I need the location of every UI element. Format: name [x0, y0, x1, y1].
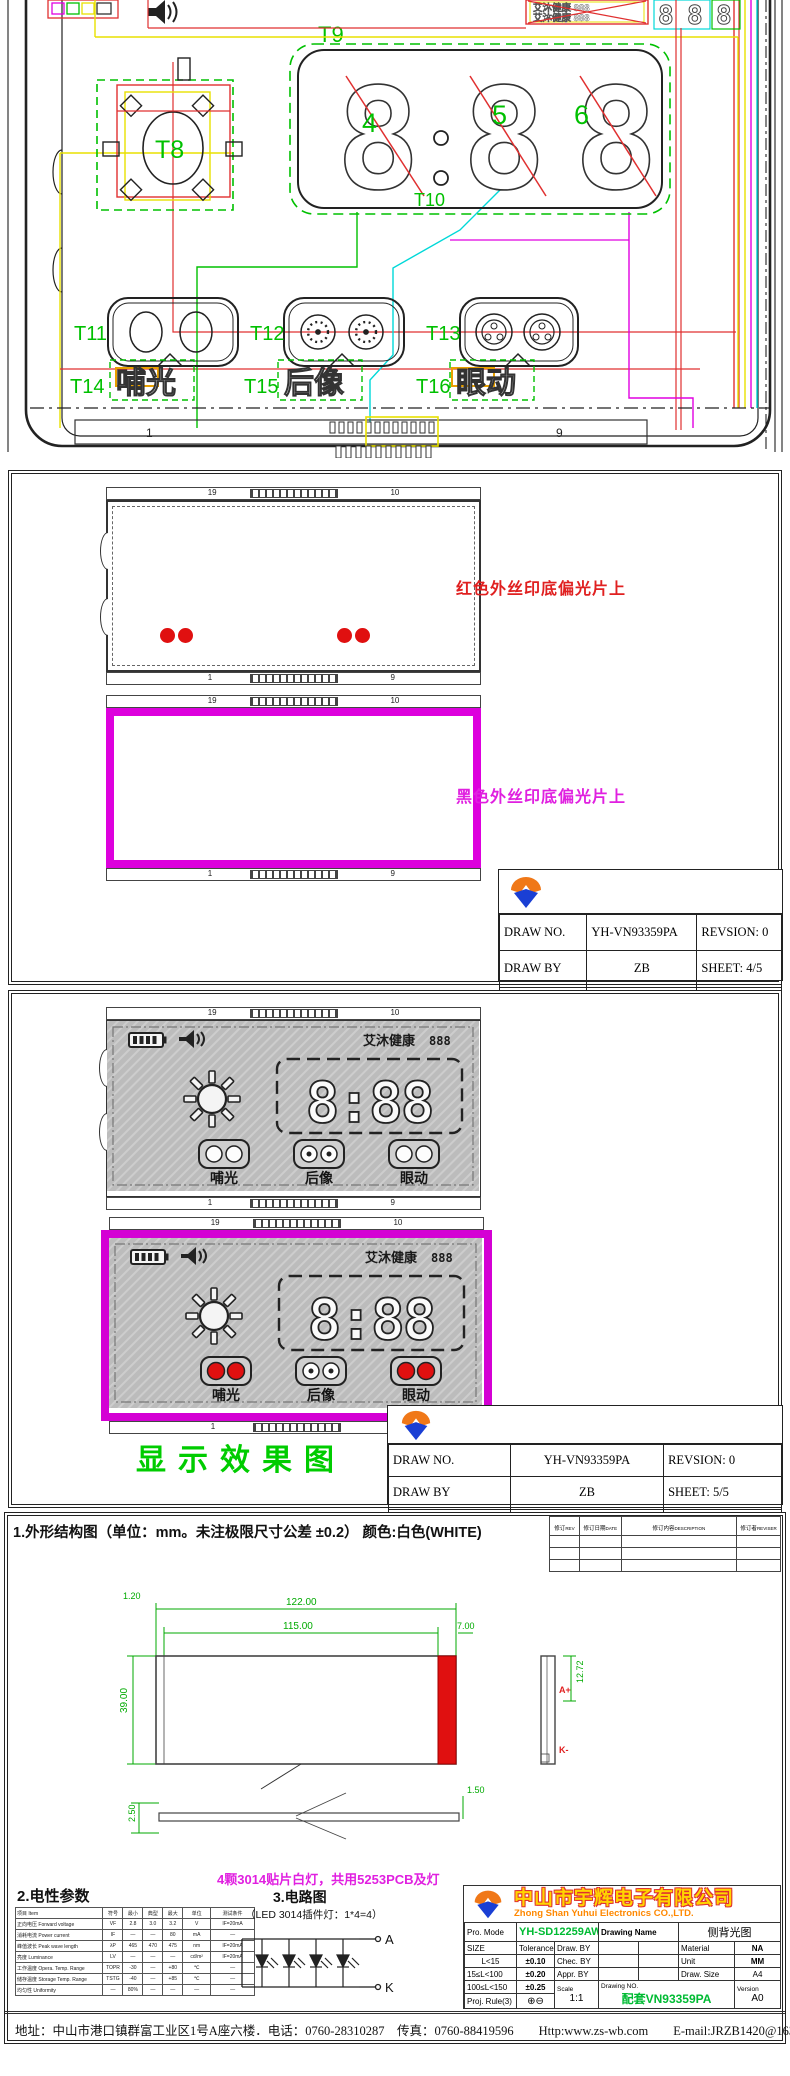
table-cell: — — [123, 1930, 143, 1941]
table-cell: — — [143, 1952, 163, 1963]
company-logo-icon — [507, 874, 545, 910]
rev-header-en: DATE — [605, 1526, 617, 1531]
electrical-heading: 2.电性参数 — [17, 1885, 90, 1906]
label-digit4: 4 — [362, 108, 377, 138]
table-cell: — — [163, 1985, 183, 1996]
pin-comb — [253, 1423, 341, 1432]
table-cell: ℃ — [183, 1974, 211, 1985]
tick-label: 9 — [390, 869, 394, 878]
rev-header-en: DESCRIPTION — [675, 1526, 706, 1531]
lcd-time-digits: 8:88 — [308, 1288, 435, 1353]
table-cell: 峰值波长 Peak wave length — [16, 1941, 103, 1952]
size-label: SIZE — [465, 1942, 517, 1955]
table-row: 峰值波长 Peak wave lengthλP465470475nmIF=20m… — [16, 1941, 255, 1952]
draw-by-value: ZB — [587, 951, 697, 987]
electrical-parameters-table: 项目 Item 符号 最小 典型 最大 单位 测试条件 正向电压 Forward… — [15, 1907, 255, 1996]
table-cell — [737, 1548, 781, 1560]
right-bus-wires — [734, 0, 766, 452]
table-cell: λP — [103, 1941, 123, 1952]
lcd-time-digits: 8:88 — [306, 1071, 433, 1136]
pin-comb — [253, 1219, 341, 1228]
table-cell: TOPR — [103, 1963, 123, 1974]
dim-right-bar: 7.00 — [457, 1621, 475, 1631]
dim-profile-left: 2.50 — [127, 1804, 137, 1822]
scale-cell: Scale1:1 — [555, 1981, 599, 2009]
lcd-btn2-label: 后像 — [305, 1170, 334, 1186]
side-view: A+ K- — [541, 1656, 571, 1764]
button-buguang-lit — [201, 1357, 251, 1385]
rev-header-en: REV — [565, 1526, 574, 1531]
table-cell: 470 — [143, 1941, 163, 1952]
brand-text-line2: 艾沐健康 888 — [533, 12, 590, 24]
black-silkscreen-note: 黑色外丝印底偏光片上 — [456, 783, 626, 807]
rev-header-en: REVISER — [757, 1526, 777, 1531]
rev-col-header: 修订日期DATE — [579, 1517, 621, 1536]
label-digit5: 5 — [492, 100, 507, 130]
table-cell: V — [183, 1919, 211, 1930]
drawing-no-label: Drawing NO. — [601, 1983, 732, 1990]
table-cell: 80% — [123, 1985, 143, 1996]
label-t11: T11 — [74, 323, 107, 345]
table-cell: 消耗电流 Power current — [16, 1930, 103, 1941]
draw-by-label: DRAW BY — [500, 951, 587, 987]
draw-by-label: Draw. BY — [555, 1942, 599, 1955]
red-print-dot — [160, 628, 175, 643]
company-header: 中山市宇辉电子有限公司 Zhong Shan Yuhui Electronics… — [464, 1886, 780, 1922]
label-digit6: 6 — [574, 100, 589, 130]
speaker-icon — [148, 0, 177, 24]
table-cell: 465 — [123, 1941, 143, 1952]
table-cell: mA — [183, 1930, 211, 1941]
side-tab — [99, 1113, 107, 1151]
table-cell — [599, 1955, 639, 1968]
draw-no-label: DRAW NO. — [500, 915, 587, 951]
company-address-footer: 地址：中山市港口镇群富工业区1号A座六楼．电话：0760-28310287 传真… — [5, 2011, 785, 2039]
circuit-diagram: A K — [227, 1921, 407, 2011]
table-cell: IF — [103, 1930, 123, 1941]
table-row: DRAW BY ZB SHEET: 4/5 — [500, 951, 782, 987]
table-cell: — — [143, 1963, 163, 1974]
table-cell — [599, 1968, 639, 1981]
proj-rule-label: Proj. Rule(3) — [465, 1994, 517, 2009]
table-cell: 3.0 — [143, 1919, 163, 1930]
seg-digit: 8 — [716, 1, 732, 31]
table-row: 正向电压 Forward voltageVF2.83.03.2VIF=20mA — [16, 1919, 255, 1930]
company-logo-icon — [398, 1408, 434, 1442]
lcd-brand-digits: 888 — [429, 1034, 451, 1048]
drawing-no-cell: Drawing NO.配套VN93359PA — [599, 1981, 735, 2009]
appr-by-label: Appr. BY — [555, 1968, 599, 1981]
tick-label: 10 — [390, 488, 399, 497]
tol1-value: ±0.10 — [517, 1955, 555, 1968]
revision-value: 0 — [729, 1453, 735, 1467]
table-row: 储存温度 Storage Temp. RangeTSTG-40—+85℃— — [16, 1974, 255, 1985]
dim-side-height: 12.72 — [575, 1660, 585, 1683]
revision-cell: REVSION: 0 — [697, 915, 782, 951]
button-houxiang — [294, 1140, 344, 1168]
table-cell: — — [163, 1952, 183, 1963]
dim-profile-right: 1.50 — [467, 1785, 485, 1795]
lcd-body-highlight: 艾沐健康 888 — [101, 1230, 492, 1421]
label-t13: T13 — [426, 323, 460, 345]
chec-by-label: Chec. BY — [555, 1955, 599, 1968]
lcd-brand-text: 艾沐健康 — [365, 1250, 418, 1265]
table-cell: cd/m² — [183, 1952, 211, 1963]
drawing-name-label: Drawing Name — [599, 1923, 679, 1942]
terminal-k-label: K — [385, 1980, 394, 1995]
table-cell — [639, 1942, 679, 1955]
dim-height: 39.00 — [119, 1688, 130, 1713]
company-name-en: Zhong Shan Yuhui Electronics CO.,LTD. — [514, 1908, 734, 1919]
title-block: DRAW NO. YH-VN93359PA REVSION: 0 DRAW BY… — [387, 1405, 783, 1505]
table-cell: — — [103, 1985, 123, 1996]
lcd-btn2-label: 后像 — [307, 1387, 336, 1403]
pin-comb — [250, 697, 338, 706]
table-row: DRAW NO. YH-VN93359PA REVSION: 0 — [500, 915, 782, 951]
tick-label: 1 — [211, 1422, 215, 1431]
drawing-document: 艾沐健康 888 艾沐健康 888 8 8 8 T9 — [0, 0, 790, 2076]
table-row: 消耗电流 Power currentIF——80mA— — [16, 1930, 255, 1941]
scale-label: Scale — [557, 1986, 596, 1993]
tick-label: 9 — [390, 673, 394, 682]
lcd-btn1-label: 哺光 — [210, 1170, 238, 1186]
lcd-btn1-label: 哺光 — [212, 1387, 240, 1403]
pin-strip-top: 19 10 — [106, 487, 481, 500]
drawing-name-value: 侧背光图 — [679, 1923, 781, 1942]
rev-header-cn: 修订者 — [740, 1526, 757, 1532]
table-row: DRAW BY ZB SHEET: 5/5 — [389, 1477, 782, 1509]
revision-cell: REVSION: 0 — [664, 1445, 782, 1477]
label-t15: T15 — [244, 376, 278, 398]
lcd-mockup-off: 19 10 — [106, 1007, 481, 1210]
tick-label: 1 — [208, 869, 212, 878]
table-cell: — — [143, 1985, 163, 1996]
logo-row — [499, 870, 782, 914]
table-cell: +80 — [163, 1963, 183, 1974]
legend-houxiang: 后像 — [284, 367, 344, 400]
circuit-subtitle: （LED 3014插件灯：1*4=4） — [245, 1907, 382, 1922]
lcd-mockup-on: 19 10 — [101, 1217, 492, 1434]
sheet-segment-layout: 艾沐健康 888 艾沐健康 888 8 8 8 T9 — [0, 0, 790, 458]
sheet-outline-spec: 1.外形结构图（单位：mm。未注极限尺寸公差 ±0.2） 颜色:白色(WHITE… — [4, 1512, 786, 2044]
table-header-cell: 项目 Item — [16, 1908, 103, 1919]
polarizer-black-print-view: 19 10 1 9 — [106, 695, 481, 881]
table-row: SIZE Tolerance Draw. BY Material NA — [465, 1942, 781, 1955]
table-cell: 正向电压 Forward voltage — [16, 1919, 103, 1930]
table-row: 工作温度 Opera. Temp. RangeTOPR-30—+80℃— — [16, 1963, 255, 1974]
battery-connector-cluster — [48, 0, 118, 18]
draw-size-label: Draw. Size — [679, 1968, 735, 1981]
label-t16: T16 — [416, 376, 450, 398]
draw-size-value: A4 — [735, 1968, 781, 1981]
pin-scale-bar: 1 9 — [75, 417, 647, 458]
scale-tick-1: 1 — [146, 426, 153, 440]
tick-label: 10 — [393, 1218, 402, 1227]
battery-icon — [131, 1250, 169, 1264]
table-cell — [737, 1536, 781, 1548]
draw-no-value: YH-VN93359PA — [510, 1445, 663, 1477]
material-label: Material — [679, 1942, 735, 1955]
pin-strip-bottom: 1 9 — [106, 1197, 481, 1210]
draw-no-label: DRAW NO. — [389, 1445, 511, 1477]
table-cell: nm — [183, 1941, 211, 1952]
pin-comb — [250, 674, 338, 683]
tol3-label: 100≤L<150 — [465, 1981, 517, 1994]
pin-strip-bottom: 1 9 — [106, 672, 481, 685]
pin-comb — [250, 1199, 338, 1208]
tick-label: 1 — [208, 1198, 212, 1207]
tick-label: 10 — [390, 1008, 399, 1017]
lcd-screen: 艾沐健康 888 — [107, 1021, 479, 1191]
red-print-dot — [337, 628, 352, 643]
brand-silkscreen-box: 艾沐健康 888 艾沐健康 888 — [526, 0, 648, 24]
unit-label: Unit — [679, 1955, 735, 1968]
side-tab — [100, 598, 108, 636]
terminal-a-label: A — [385, 1932, 394, 1947]
red-print-dot — [178, 628, 193, 643]
tol1-label: L<15 — [465, 1955, 517, 1968]
tick-label: 19 — [208, 1008, 217, 1017]
table-row: 均匀性 Uniformity—80%———— — [16, 1985, 255, 1996]
lcd-btn3-label: 眼动 — [400, 1170, 428, 1186]
table-cell: 亮度 Luminance — [16, 1952, 103, 1963]
table-cell: -40 — [123, 1974, 143, 1985]
legend-yandong: 眼动 — [456, 367, 516, 400]
legend-buguang: 哺光 — [116, 367, 176, 400]
label-t10: T10 — [414, 190, 445, 210]
table-cell: 80 — [163, 1930, 183, 1941]
seg-digit-large: 8 — [574, 59, 658, 222]
cathode-label: K- — [559, 1745, 569, 1755]
button-houxiang — [296, 1357, 346, 1385]
sun-icon — [186, 1288, 242, 1344]
revision-value: 0 — [762, 925, 768, 939]
button-yandong-lit — [391, 1357, 441, 1385]
pin-comb — [250, 1009, 338, 1018]
lcd-body: 艾沐健康 888 — [106, 1020, 481, 1197]
anode-label: A+ — [559, 1685, 571, 1695]
top-view — [156, 1656, 456, 1789]
company-names: 中山市宇辉电子有限公司 Zhong Shan Yuhui Electronics… — [514, 1889, 734, 1919]
pin-strip-top: 19 10 — [106, 1007, 481, 1020]
table-cell: VF — [103, 1919, 123, 1930]
company-logo-icon — [468, 1888, 508, 1920]
tick-label: 19 — [208, 696, 217, 705]
table-cell: — — [143, 1974, 163, 1985]
table-row: 亮度 LuminanceLV———cd/m²IF=20mA — [16, 1952, 255, 1963]
table-cell — [639, 1968, 679, 1981]
table-cell: 均匀性 Uniformity — [16, 1985, 103, 1996]
t8-sun-key-block — [97, 58, 242, 210]
rev-col-header: 修订内容DESCRIPTION — [621, 1517, 736, 1536]
table-cell: +85 — [163, 1974, 183, 1985]
table-cell: 3.2 — [163, 1919, 183, 1930]
title-block: DRAW NO. YH-VN93359PA REVSION: 0 DRAW BY… — [498, 869, 783, 981]
tolerance-label: Tolerance — [517, 1942, 555, 1955]
table-cell: 工作温度 Opera. Temp. Range — [16, 1963, 103, 1974]
table-cell: 2.8 — [123, 1919, 143, 1930]
draw-by-label: DRAW BY — [389, 1477, 511, 1509]
dim-inner-width: 115.00 — [283, 1621, 313, 1632]
company-name-cn: 中山市宇辉电子有限公司 — [514, 1889, 734, 1908]
table-cell: — — [183, 1985, 211, 1996]
revision-label: REVSION: — [668, 1453, 726, 1467]
table-cell: TSTG — [103, 1974, 123, 1985]
rev-header-cn: 修订日期 — [583, 1526, 605, 1532]
lcd-screen: 艾沐健康 888 — [109, 1238, 482, 1408]
table-header-cell: 单位 — [183, 1908, 211, 1919]
table-header-cell: 最大 — [163, 1908, 183, 1919]
drawing-no-value: 配套VN93359PA — [601, 1990, 732, 2007]
sheet-cell: SHEET: 5/5 — [664, 1477, 782, 1509]
red-silkscreen-note: 红色外丝印底偏光片上 — [456, 575, 626, 599]
seg-digit: 8 — [687, 1, 703, 31]
pin-strip-top: 19 10 — [109, 1217, 484, 1230]
sun-icon — [184, 1071, 240, 1127]
unit-value: MM — [735, 1955, 781, 1968]
table-row: DRAW NO. YH-VN93359PA REVSION: 0 — [389, 1445, 782, 1477]
table-cell: 475 — [163, 1941, 183, 1952]
button-yandong — [389, 1140, 439, 1168]
table-row: 15≤L<100 ±0.20 Appr. BY Draw. Size A4 — [465, 1968, 781, 1981]
tol2-value: ±0.20 — [517, 1968, 555, 1981]
pro-mode-label: Pro. Mode — [465, 1923, 517, 1942]
sheet-display-effect: 19 10 — [8, 990, 782, 1508]
table-row: 修订REV 修订日期DATE 修订内容DESCRIPTION 修订者REVISE… — [550, 1517, 781, 1536]
table-cell: 储存温度 Storage Temp. Range — [16, 1974, 103, 1985]
pin-comb — [250, 870, 338, 879]
version-label: Version — [737, 1986, 778, 1993]
led-pcb-note: 4颗3014贴片白灯，共用5253PCB及灯 — [217, 1869, 440, 1888]
seg-digits-large: 8 8 8 — [336, 59, 658, 222]
table-header-cell: 符号 — [103, 1908, 123, 1919]
company-info-table: Pro. Mode YH-SD12259AW4 Drawing Name 侧背光… — [464, 1922, 781, 2009]
table-header-row: 项目 Item 符号 最小 典型 最大 单位 测试条件 — [16, 1908, 255, 1919]
seg-digit-large: 8 — [336, 59, 420, 222]
outline-heading: 1.外形结构图（单位：mm。未注极限尺寸公差 ±0.2） 颜色:白色(WHITE… — [13, 1521, 482, 1542]
lcd-brand-digits: 888 — [431, 1251, 453, 1265]
seg-digit: 8 — [658, 1, 674, 31]
logo-row — [388, 1406, 782, 1444]
table-cell — [737, 1560, 781, 1572]
company-title-block: 中山市宇辉电子有限公司 Zhong Shan Yuhui Electronics… — [463, 1885, 781, 2009]
label-t14: T14 — [70, 376, 104, 398]
tick-label: 19 — [208, 488, 217, 497]
scale-tick-9: 9 — [556, 426, 563, 440]
profile-view — [159, 1793, 459, 1839]
table-cell: -30 — [123, 1963, 143, 1974]
sheet-cell: SHEET: 4/5 — [697, 951, 782, 987]
circuit-heading: 3.电路图 — [273, 1887, 327, 1907]
black-print-frame — [106, 708, 481, 868]
rev-col-header: 修订REV — [550, 1517, 580, 1536]
rev-header-cn: 修订 — [554, 1526, 565, 1532]
table-row: Pro. Mode YH-SD12259AW4 Drawing Name 侧背光… — [465, 1923, 781, 1942]
side-tab — [99, 1049, 107, 1087]
dim-total-width: 122.00 — [286, 1597, 317, 1608]
draw-no-value: YH-VN93359PA — [587, 915, 697, 951]
table-cell — [599, 1942, 639, 1955]
table-cell: — — [143, 1930, 163, 1941]
glass-outline — [106, 500, 481, 672]
side-tab — [100, 532, 108, 570]
red-print-dot — [355, 628, 370, 643]
segment-layout-drawing: 艾沐健康 888 艾沐健康 888 8 8 8 T9 — [0, 0, 790, 458]
table-header-cell: 最小 — [123, 1908, 143, 1919]
battery-icon — [129, 1033, 167, 1047]
table-cell: ℃ — [183, 1963, 211, 1974]
polarizer-red-print-view: 19 10 1 9 — [106, 487, 481, 685]
pro-mode-value: YH-SD12259AW4 — [517, 1923, 599, 1942]
table-row: L<15 ±0.10 Chec. BY Unit MM — [465, 1955, 781, 1968]
pin-strip-top: 19 10 — [106, 695, 481, 708]
version-value: A0 — [737, 1993, 778, 2004]
tick-label: 19 — [211, 1218, 220, 1227]
label-t8: T8 — [155, 136, 184, 164]
pin-comb — [250, 489, 338, 498]
draw-by-value: ZB — [510, 1477, 663, 1509]
revision-label: REVSION: — [701, 925, 759, 939]
material-value: NA — [735, 1942, 781, 1955]
display-effect-caption: 显示效果图 — [136, 1435, 346, 1479]
scale-value: 1:1 — [557, 1993, 596, 2004]
tick-label: 9 — [390, 1198, 394, 1207]
tick-label: 1 — [208, 673, 212, 682]
outline-dimension-drawing: 122.00 115.00 1.20 7.00 39.00 12.72 2.50… — [11, 1541, 651, 1861]
lcd-btn3-label: 眼动 — [402, 1387, 430, 1403]
pin-strip-bottom: 1 9 — [106, 868, 481, 881]
sheet-polarizer-silkscreen: 19 10 1 9 红色外丝印底偏光片上 19 — [8, 470, 782, 985]
version-cell: VersionA0 — [735, 1981, 781, 2009]
rev-col-header: 修订者REVISER — [737, 1517, 781, 1536]
button-buguang — [199, 1140, 249, 1168]
small-digits-888: 8 8 8 — [654, 0, 740, 31]
table-cell — [639, 1955, 679, 1968]
table-cell: LV — [103, 1952, 123, 1963]
rev-header-cn: 修订内容 — [653, 1526, 675, 1532]
dim-left-margin: 1.20 — [123, 1591, 141, 1601]
tol2-label: 15≤L<100 — [465, 1968, 517, 1981]
label-t12: T12 — [250, 323, 284, 345]
circuit-terminals: A K — [359, 1932, 394, 1995]
table-cell: — — [123, 1952, 143, 1963]
table-header-cell: 典型 — [143, 1908, 163, 1919]
lcd-brand-text: 艾沐健康 — [363, 1033, 416, 1048]
projection-symbol: ⊕⊖ — [517, 1994, 555, 2009]
table-row: 100≤L<150 ±0.25 Scale1:1 Drawing NO.配套VN… — [465, 1981, 781, 1994]
tick-label: 10 — [390, 696, 399, 705]
tol3-value: ±0.25 — [517, 1981, 555, 1994]
led-symbols — [256, 1939, 359, 1987]
